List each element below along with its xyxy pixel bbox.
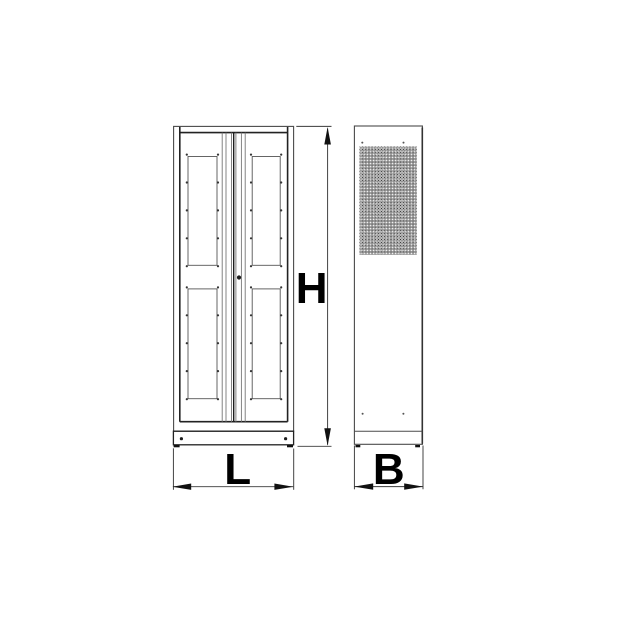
svg-text:B: B — [373, 445, 405, 494]
svg-text:L: L — [224, 445, 251, 494]
svg-text:H: H — [296, 264, 328, 313]
